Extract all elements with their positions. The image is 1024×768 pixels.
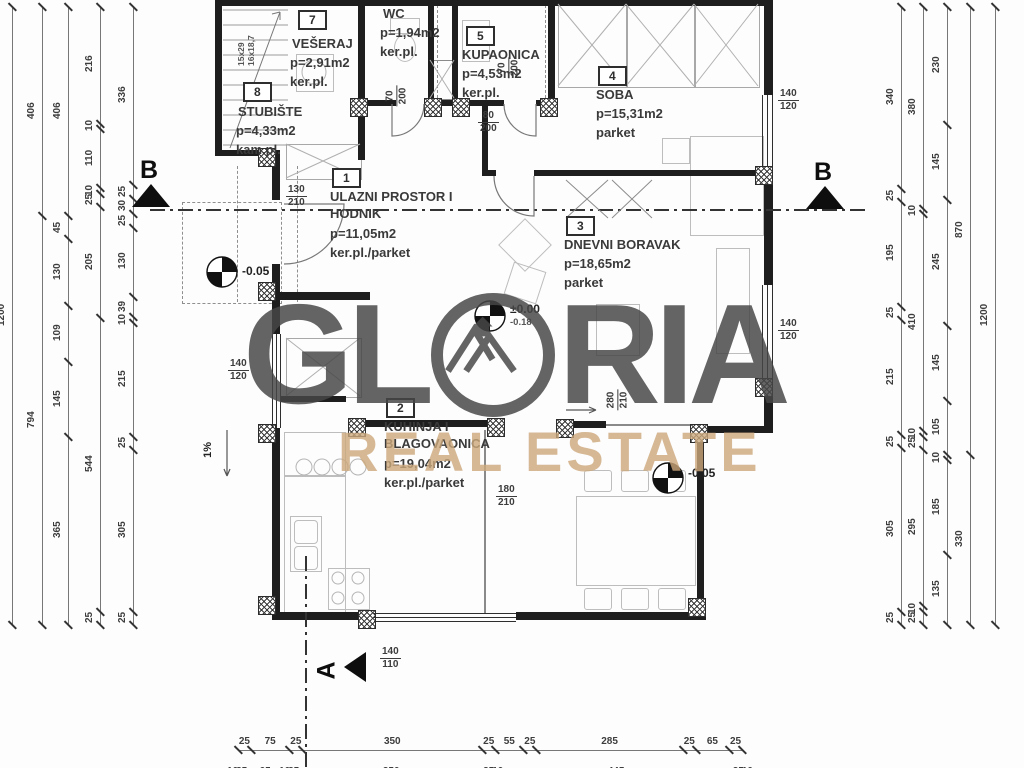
dim-label: 25 [84,179,95,219]
dim-label: 870 [954,210,965,250]
room-floor-2: ker.pl./parket [384,475,464,492]
dim-label: 25 [117,422,128,462]
dim-label: 215 [117,359,128,399]
room-number-2: 2 [386,398,415,418]
dim-label: 145 [931,343,942,383]
dim-bottom: 120 [778,101,799,113]
dim-label: 340 [885,77,896,117]
room-floor-5: ker.pl. [462,85,500,102]
section-triangle-a [344,652,366,682]
double-door-swing [566,180,652,218]
dim-bottom: 200 [478,123,499,135]
section-triangle-b-left [132,184,170,207]
dim-label: 109 [52,313,63,353]
dim-bottom: 210 [618,390,630,411]
room-name-3: DNEVNI BORAVAK [564,237,744,254]
dim-label: 45 [52,207,63,247]
dim-label: 135 [931,569,942,609]
dim-label: 25 [117,200,128,240]
window-size-right-top: 140 120 [778,88,799,112]
dim-top: 140 [380,646,401,659]
dim-line-left-1 [42,6,43,624]
room-floor-1: ker.pl./parket [330,245,410,262]
dim-label: 330 [954,519,965,559]
dim-bottom: 210 [286,197,307,209]
entry-door-size: 130 210 [286,184,307,208]
plan-overlay [0,0,1024,768]
dim-label: 336 [117,75,128,115]
section-letter-b-right: B [814,158,832,187]
dim-label: 145 [52,379,63,419]
dim-top: 70 [384,86,397,107]
level-entry: ±0.00 [510,302,540,316]
dim-label: 25 [716,736,756,747]
section-triangle-b-right [806,186,844,209]
room-name-4: SOBA [596,87,634,104]
room-number-3: 3 [566,216,595,236]
dim-line-bottom-0 [238,750,742,751]
dim-line-left-3 [100,6,101,624]
dim-label: 10 [117,299,128,339]
dim-top: 130 [286,184,307,197]
room-name-7: VEŠERAJ [292,36,353,53]
kitchen-fixtures [296,60,366,604]
dim-label: 25 [510,736,550,747]
dim-label: 145 [931,142,942,182]
dim-label: 305 [885,509,896,549]
wc-door-size: 70 200 [384,86,408,107]
room-number-8: 8 [243,82,272,102]
living-slider-size: 280 210 [605,390,629,411]
dim-line-right-2 [947,6,948,624]
dim-label: 25 [885,292,896,332]
room-area-7: p=2,91m2 [290,55,350,72]
room-floor-wc: ker.pl. [380,44,418,61]
dim-label: 406 [52,91,63,131]
section-letter-b-left: B [140,156,158,185]
dim-top: 140 [228,358,249,371]
level-dining: -0.05 [688,466,715,480]
slope-label: 1% [202,442,214,458]
dim-label: 406 [26,91,37,131]
dim-label: 544 [84,444,95,484]
room-number-4: 4 [598,66,627,86]
room-name-2: KUHINJA I BLAGOVAONICA [384,419,534,453]
room-floor-3: parket [564,275,603,292]
room-area-2: p=19,04m2 [384,456,451,473]
dim-label: 295 [907,507,918,547]
room-floor-4: parket [596,125,635,142]
dim-label: 10 [931,437,942,477]
level-entry-sub: -0.18 [510,317,532,328]
dim-bottom: 200 [509,58,521,79]
dim-line-right-4 [995,6,996,624]
dim-label: 130 [117,241,128,281]
dim-label: 285 [590,736,630,747]
dim-label: 25 [885,175,896,215]
window-size-left: 140 120 [228,358,249,382]
room-floor-7: ker.pl. [290,74,328,91]
dim-label: 365 [52,510,63,550]
room-name-8: STUBIŠTE [238,104,302,121]
room-number-5: 5 [466,26,495,46]
dim-line-right-3 [970,6,971,624]
dim-label: 25 [84,597,95,637]
room-area-3: p=18,65m2 [564,256,631,273]
bath-door-size: 70 200 [496,58,520,79]
dim-label: 305 [117,510,128,550]
dim-top: 180 [496,484,517,497]
soba-door-size: 80 200 [478,110,499,134]
dim-top: 80 [478,110,499,123]
room-number-1: 1 [332,168,361,188]
dim-top: 140 [778,318,799,331]
dim-line-left-0 [12,6,13,624]
dim-label: 1200 [0,295,7,335]
dim-label: 1200 [979,295,990,335]
room-name-1: ULAZNI PROSTOR I HODNIK [330,189,500,223]
dim-label: 25 [276,736,316,747]
room-area-1: p=11,05m2 [330,226,396,243]
dim-label: 410 [907,302,918,342]
dim-label: 794 [26,400,37,440]
kitchen-door-size: 180 210 [496,484,517,508]
dim-label: 25 [117,597,128,637]
dim-label: 25 [907,422,918,462]
room-area-wc: p=1,94m2 [380,25,440,42]
dim-label: 185 [931,487,942,527]
dim-label: 216 [84,44,95,84]
dim-label: 245 [931,242,942,282]
room-name-wc: WC [383,6,405,23]
dim-top: 140 [778,88,799,101]
room-area-8: p=4,33m2 [236,123,296,140]
dim-label: 25 [907,597,918,637]
dim-label: 350 [372,736,412,747]
window-size-bottom: 140 110 [380,646,401,670]
dim-label: 25 [885,421,896,461]
room-floor-8: kam.pl. [236,142,281,159]
dim-label: 215 [885,357,896,397]
dim-line-right-0 [901,6,902,624]
stair-dimensions-note: 15x29 16x18,7 [236,4,256,66]
dim-label: 10 [907,190,918,230]
section-letter-a: A [313,661,342,679]
dim-label: 195 [885,233,896,273]
room-number-7: 7 [298,10,327,30]
window-size-right-mid: 140 120 [778,318,799,342]
dim-label: 205 [84,242,95,282]
dim-label: 25 [885,597,896,637]
dim-label: 380 [907,87,918,127]
room-area-4: p=15,31m2 [596,106,663,123]
dim-bottom: 210 [496,497,517,509]
floor-plan-canvas: 1 ULAZNI PROSTOR I HODNIK p=11,05m2 ker.… [0,0,1024,768]
dim-bottom: 200 [397,86,409,107]
dim-label: 230 [931,45,942,85]
dim-bottom: 120 [778,331,799,343]
dim-bottom: 110 [380,659,401,671]
dim-bottom: 120 [228,371,249,383]
dim-line-left-2 [68,6,69,624]
level-left: -0.05 [242,264,269,278]
dim-label: 130 [52,252,63,292]
dim-line-right-1 [923,6,924,624]
dim-top: 70 [496,58,509,79]
dim-top: 280 [605,390,618,411]
